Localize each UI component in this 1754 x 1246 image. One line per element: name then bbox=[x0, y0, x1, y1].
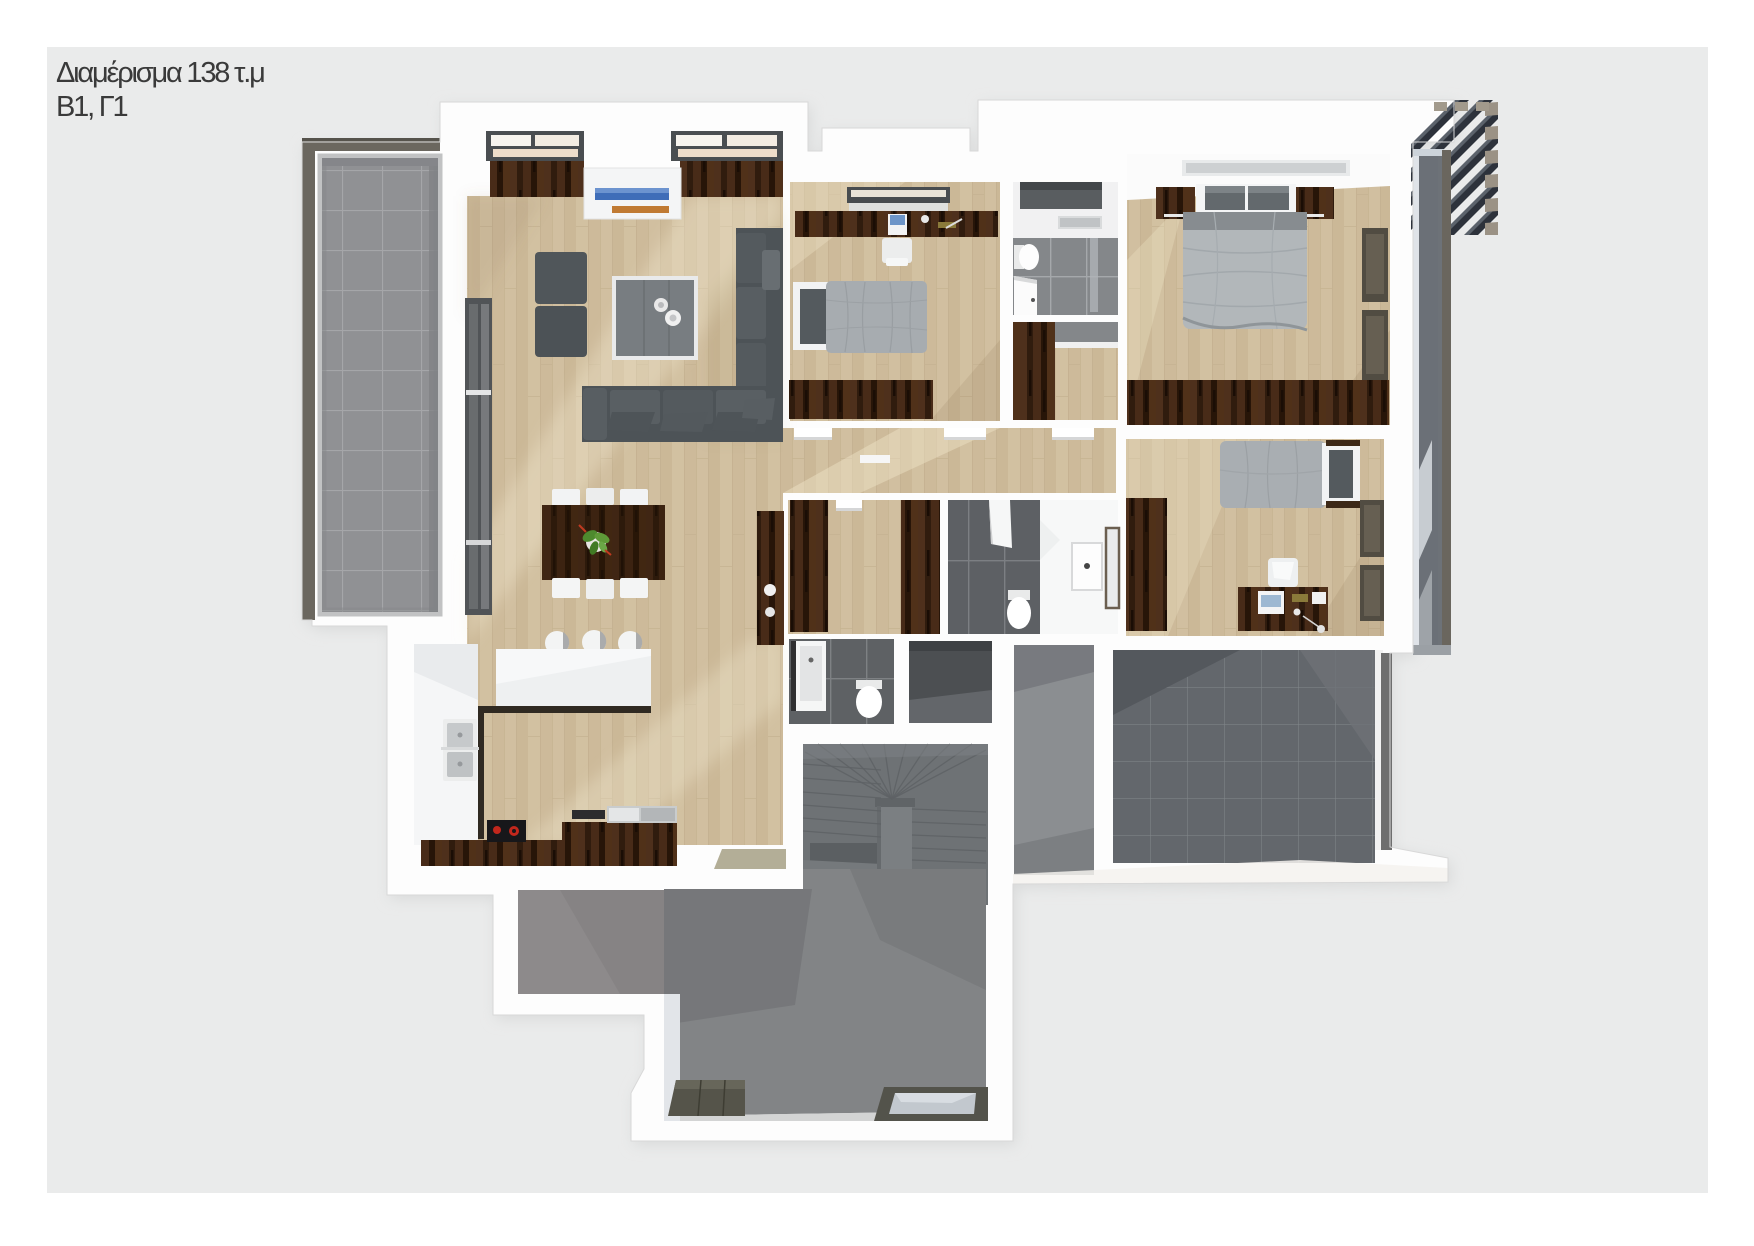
svg-text:Β1, Γ1: Β1, Γ1 bbox=[56, 91, 128, 123]
svg-text:Διαμέρισμα 138 τ.μ: Διαμέρισμα 138 τ.μ bbox=[56, 57, 264, 89]
